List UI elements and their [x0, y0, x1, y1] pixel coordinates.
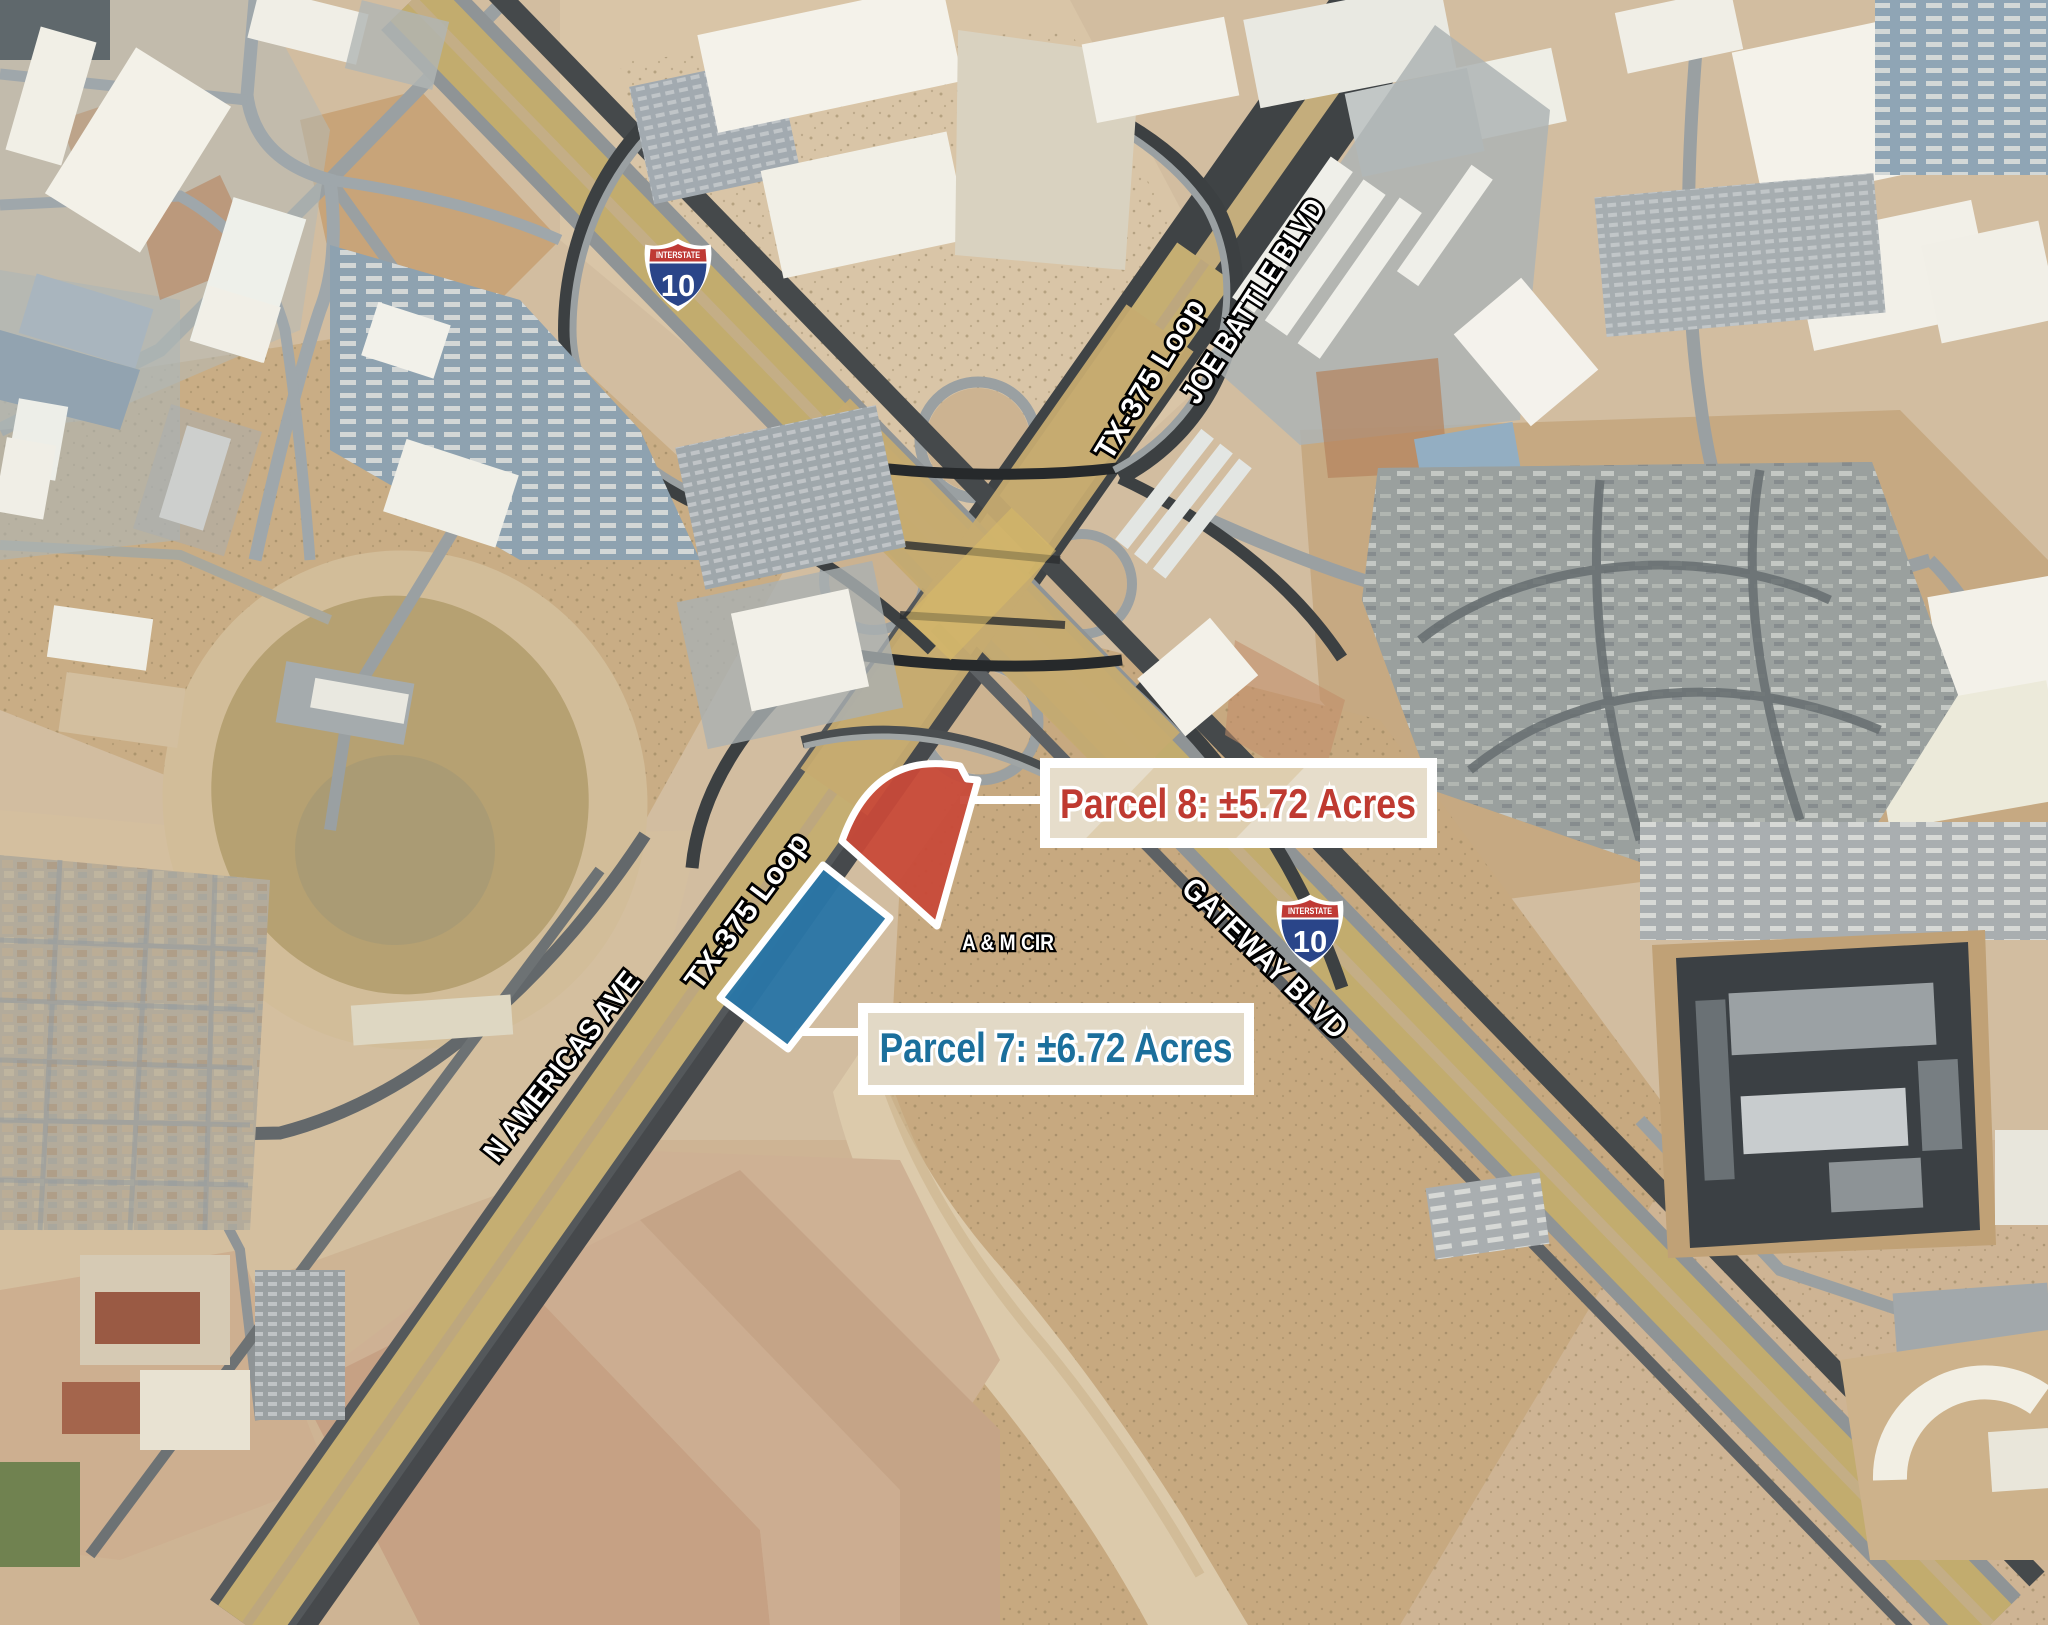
svg-text:10: 10	[661, 268, 695, 303]
svg-text:INTERSTATE: INTERSTATE	[656, 250, 700, 261]
svg-text:Parcel 7: ±6.72 Acres: Parcel 7: ±6.72 Acres	[880, 1024, 1233, 1071]
svg-text:A & M CIR: A & M CIR	[962, 930, 1054, 955]
svg-text:10: 10	[1293, 924, 1327, 959]
svg-text:INTERSTATE: INTERSTATE	[1288, 906, 1332, 917]
svg-text:Parcel 8: ±5.72 Acres: Parcel 8: ±5.72 Acres	[1060, 780, 1416, 827]
